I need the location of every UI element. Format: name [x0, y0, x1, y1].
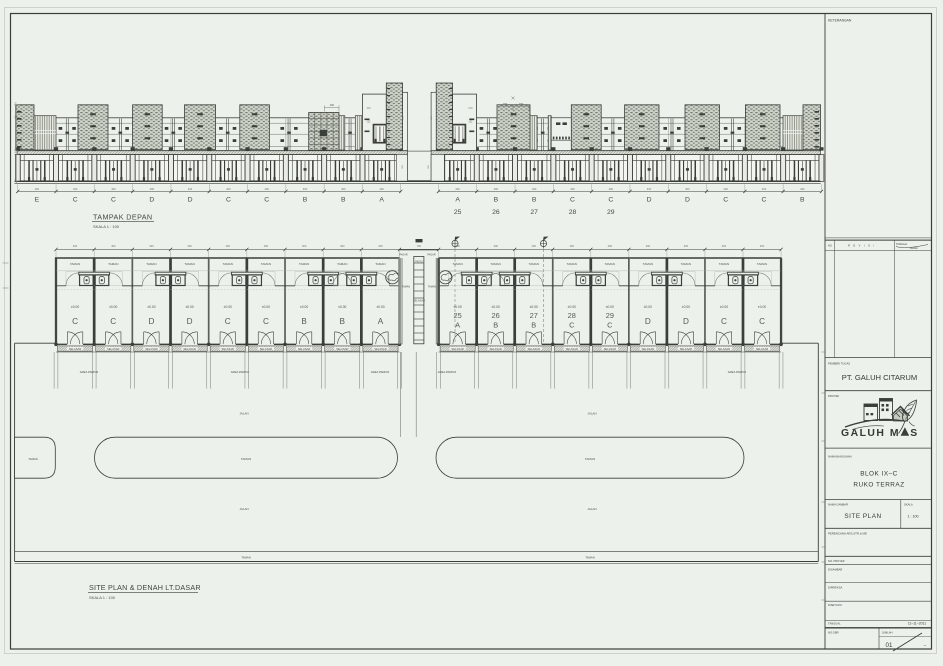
svg-text:25: 25	[454, 209, 462, 216]
svg-text:DIPERIKSA: DIPERIKSA	[828, 586, 843, 590]
svg-text:400: 400	[800, 187, 805, 191]
svg-text:NAMA GAMBAR: NAMA GAMBAR	[828, 503, 848, 507]
svg-text:400: 400	[265, 187, 270, 191]
svg-text:C: C	[263, 317, 269, 326]
svg-text:JUMLAH: JUMLAH	[882, 630, 893, 634]
svg-text:TAMAN: TAMAN	[146, 262, 156, 266]
svg-text:NAMA BANGUNAN: NAMA BANGUNAN	[828, 455, 852, 459]
svg-text:PEMBERI TUGAS: PEMBERI TUGAS	[828, 361, 850, 365]
svg-text:400: 400	[150, 187, 155, 191]
svg-text:±0.00: ±0.00	[185, 305, 193, 309]
svg-text:400: 400	[609, 187, 614, 191]
svg-text:PINTU: PINTU	[415, 260, 422, 263]
svg-text:SELASAR: SELASAR	[528, 347, 540, 351]
svg-text:132: 132	[468, 121, 473, 124]
svg-text:DIGAMBAR: DIGAMBAR	[828, 568, 842, 572]
svg-text:C: C	[607, 320, 613, 329]
svg-text:SELASAR: SELASAR	[183, 347, 195, 351]
svg-text:B: B	[303, 196, 308, 203]
svg-text:TAMAN: TAMAN	[567, 262, 577, 266]
svg-text:SELASAR: SELASAR	[222, 347, 234, 351]
svg-text:400: 400	[340, 244, 345, 248]
svg-text:TAMAN: TAMAN	[452, 262, 462, 266]
svg-text:TAMAN: TAMAN	[529, 262, 539, 266]
svg-text:±0.00: ±0.00	[682, 305, 690, 309]
svg-text:TAMAN: TAMAN	[241, 556, 251, 560]
svg-text:±0.00: ±0.00	[606, 305, 614, 309]
svg-text:E: E	[35, 196, 40, 203]
svg-text:400: 400	[378, 244, 383, 248]
svg-text:400: 400	[494, 187, 499, 191]
svg-text:D: D	[187, 317, 193, 326]
svg-text:SKALA: SKALA	[904, 503, 913, 507]
svg-text:400: 400	[379, 187, 384, 191]
svg-text:D: D	[149, 196, 154, 203]
svg-text:PAGAR: PAGAR	[399, 253, 407, 256]
svg-text:SKALA 1 : 100: SKALA 1 : 100	[89, 595, 116, 600]
svg-text:400: 400	[302, 244, 307, 248]
svg-text:400: 400	[226, 187, 231, 191]
svg-text:TAMAN: TAMAN	[337, 262, 347, 266]
svg-text:SELASAR: SELASAR	[604, 347, 616, 351]
svg-text:TAMAN: TAMAN	[585, 556, 595, 560]
svg-text:27: 27	[530, 311, 538, 320]
svg-text:C: C	[569, 320, 575, 329]
svg-text:±0.00: ±0.00	[262, 305, 270, 309]
svg-text:400: 400	[73, 187, 78, 191]
svg-text:C: C	[608, 196, 613, 203]
svg-text:±0.00: ±0.00	[376, 305, 384, 309]
svg-text:29: 29	[606, 311, 614, 320]
svg-text:SELASAR: SELASAR	[374, 347, 386, 351]
svg-text:±0.00: ±0.00	[492, 305, 500, 309]
svg-text:NO. PROYEK: NO. PROYEK	[828, 559, 845, 563]
svg-text:B: B	[301, 317, 307, 326]
svg-text:±0.00: ±0.00	[224, 305, 232, 309]
svg-text:400: 400	[187, 244, 192, 248]
svg-text:C: C	[723, 196, 728, 203]
svg-text:TAMAN: TAMAN	[184, 262, 194, 266]
svg-text:C: C	[570, 196, 575, 203]
svg-text:B: B	[532, 196, 537, 203]
svg-text:100: 100	[330, 103, 335, 107]
svg-text:±0.00: ±0.00	[644, 305, 652, 309]
svg-text:SELASAR: SELASAR	[298, 347, 310, 351]
svg-text:A: A	[379, 196, 384, 203]
svg-text:TAMAN: TAMAN	[28, 457, 38, 461]
svg-text:NO: NO	[828, 243, 832, 247]
svg-text:400: 400	[532, 187, 537, 191]
svg-text:172: 172	[366, 106, 371, 110]
svg-text:TAMAN: TAMAN	[108, 262, 118, 266]
svg-text:C: C	[721, 317, 727, 326]
svg-text:TAMAN: TAMAN	[757, 262, 767, 266]
svg-text:400: 400	[608, 244, 613, 248]
svg-text:TAMAN: TAMAN	[605, 262, 615, 266]
svg-text:400: 400	[570, 187, 575, 191]
svg-text:29: 29	[607, 209, 615, 216]
svg-text:TANGGAL: TANGGAL	[896, 243, 908, 246]
svg-text:C: C	[72, 317, 78, 326]
svg-text:JALAN: JALAN	[587, 507, 596, 511]
svg-text:BLOK IX–C: BLOK IX–C	[860, 471, 898, 478]
svg-text:AREA PARKIR: AREA PARKIR	[371, 370, 389, 374]
svg-text:28: 28	[569, 209, 577, 216]
svg-text:NO.GBR: NO.GBR	[828, 630, 839, 634]
svg-text:390: 390	[417, 245, 422, 248]
svg-text:400: 400	[264, 244, 269, 248]
svg-text:A: A	[455, 196, 460, 203]
svg-text:400: 400	[646, 244, 651, 248]
svg-text:400: 400	[226, 244, 231, 248]
svg-text:SKALA 1 : 100: SKALA 1 : 100	[93, 224, 120, 229]
svg-text:40: 40	[15, 179, 17, 181]
svg-text:TAMAN: TAMAN	[241, 457, 251, 461]
svg-text:400: 400	[760, 244, 765, 248]
svg-text:JALAN: JALAN	[587, 412, 596, 416]
svg-text:26: 26	[492, 311, 500, 320]
svg-text:D: D	[148, 317, 154, 326]
svg-text:PERENCANA ARS,STR & ME: PERENCANA ARS,STR & ME	[828, 531, 867, 535]
svg-text:TANGGAL: TANGGAL	[828, 622, 841, 626]
svg-text:400: 400	[188, 187, 193, 191]
svg-text:D: D	[188, 196, 193, 203]
svg-text:TAMAN: TAMAN	[402, 286, 410, 289]
svg-text:400: 400	[35, 187, 40, 191]
svg-text:TAMAN: TAMAN	[70, 262, 80, 266]
svg-text:28: 28	[568, 311, 576, 320]
svg-text:C: C	[264, 196, 269, 203]
svg-text:150: 150	[519, 102, 524, 106]
svg-text:AREA PARKIR: AREA PARKIR	[728, 370, 746, 374]
svg-text:C: C	[762, 196, 767, 203]
svg-text:±0.00: ±0.00	[338, 305, 346, 309]
svg-text:SELASAR: SELASAR	[260, 347, 272, 351]
svg-text:±0.00: ±0.00	[530, 305, 538, 309]
svg-text:SELASAR: SELASAR	[756, 347, 768, 351]
svg-text:40: 40	[15, 152, 17, 154]
svg-text:DISETUJUI: DISETUJUI	[828, 603, 842, 607]
svg-text:±0.00: ±0.00	[720, 305, 728, 309]
svg-text:SELASAR: SELASAR	[566, 347, 578, 351]
svg-text:B: B	[494, 196, 499, 203]
svg-text:D: D	[647, 196, 652, 203]
svg-text:1 : 100: 1 : 100	[908, 515, 919, 519]
svg-text:400: 400	[570, 244, 575, 248]
svg-text:25: 25	[454, 311, 462, 320]
svg-text:SELASAR: SELASAR	[336, 347, 348, 351]
svg-text:D: D	[685, 196, 690, 203]
svg-text:150: 150	[503, 102, 508, 106]
svg-text:SITE PLAN: SITE PLAN	[844, 513, 881, 520]
svg-text:D: D	[683, 317, 689, 326]
svg-text:B: B	[340, 317, 346, 326]
svg-text:S: S	[910, 428, 917, 439]
svg-text:400: 400	[73, 244, 78, 248]
svg-text:01: 01	[886, 642, 893, 649]
svg-text:C: C	[73, 196, 78, 203]
svg-text:400: 400	[724, 187, 729, 191]
svg-text:TAMAN: TAMAN	[261, 262, 271, 266]
svg-text:AREA PARKIR: AREA PARKIR	[438, 370, 456, 374]
svg-text:SELASAR: SELASAR	[69, 347, 81, 351]
svg-text:SELASAR: SELASAR	[642, 347, 654, 351]
svg-text:400: 400	[684, 244, 689, 248]
svg-text:C: C	[226, 196, 231, 203]
svg-text:SELASAR: SELASAR	[145, 347, 157, 351]
svg-text:400: 400	[111, 244, 116, 248]
svg-text:JALAN: JALAN	[239, 412, 248, 416]
svg-text:TAMAN: TAMAN	[375, 262, 385, 266]
svg-text:400: 400	[303, 187, 308, 191]
svg-text:B: B	[531, 320, 536, 329]
svg-text:B: B	[341, 196, 346, 203]
svg-text:TAMAN: TAMAN	[223, 262, 233, 266]
svg-text:400: 400	[647, 187, 652, 191]
svg-text:A: A	[455, 320, 460, 329]
svg-text:TAMAN: TAMAN	[585, 457, 595, 461]
svg-text:400: 400	[341, 187, 346, 191]
svg-text:40: 40	[15, 103, 17, 105]
svg-text:C: C	[111, 196, 116, 203]
svg-text:400: 400	[685, 187, 690, 191]
svg-text:C: C	[759, 317, 765, 326]
svg-text:KETERANGAN: KETERANGAN	[828, 19, 852, 23]
svg-text:±0.00: ±0.00	[568, 305, 576, 309]
svg-text:400: 400	[455, 187, 460, 191]
svg-text:400: 400	[149, 244, 154, 248]
svg-text:SITE PLAN & DENAH LT.DASAR: SITE PLAN & DENAH LT.DASAR	[89, 583, 201, 592]
svg-text:172: 172	[468, 106, 473, 110]
svg-text:TAMAN: TAMAN	[719, 262, 729, 266]
svg-text:400: 400	[494, 244, 499, 248]
svg-text:RUKO TERRAZ: RUKO TERRAZ	[853, 481, 904, 488]
svg-text:PAGAR: PAGAR	[427, 253, 435, 256]
svg-text:TAMAN: TAMAN	[643, 262, 653, 266]
svg-text:400: 400	[532, 244, 537, 248]
svg-text:TAMAN: TAMAN	[491, 262, 501, 266]
svg-text:40: 40	[15, 149, 17, 151]
svg-text:±0.00: ±0.00	[71, 305, 79, 309]
svg-text:SELASAR: SELASAR	[489, 347, 501, 351]
svg-text:TAMAN: TAMAN	[299, 262, 309, 266]
svg-text:R E V I S I: R E V I S I	[848, 243, 876, 247]
svg-text:±0.00: ±0.00	[758, 305, 766, 309]
svg-text:C: C	[110, 317, 116, 326]
svg-text:JALAN: JALAN	[239, 507, 248, 511]
svg-text:GALUH M: GALUH M	[841, 428, 900, 439]
svg-text:26: 26	[492, 209, 500, 216]
svg-text:PROYEK: PROYEK	[828, 394, 839, 398]
svg-text:400: 400	[722, 244, 727, 248]
svg-text:B: B	[800, 196, 805, 203]
svg-text:±0.00: ±0.00	[300, 305, 308, 309]
svg-text:400: 400	[111, 187, 116, 191]
svg-text:40: 40	[15, 116, 17, 118]
svg-text:SELASAR: SELASAR	[107, 347, 119, 351]
svg-text:SELASAR: SELASAR	[718, 347, 730, 351]
svg-text:132: 132	[367, 121, 372, 124]
svg-text:PARAF: PARAF	[910, 247, 918, 250]
svg-text:±0.00: ±0.00	[109, 305, 117, 309]
svg-text:A: A	[378, 317, 384, 326]
svg-text:B: B	[493, 320, 498, 329]
svg-text:TAMPAK DEPAN: TAMPAK DEPAN	[93, 212, 153, 221]
svg-text:C: C	[225, 317, 231, 326]
svg-text:TAMAN: TAMAN	[428, 286, 436, 289]
svg-text:AREA PARKIR: AREA PARKIR	[80, 370, 98, 374]
svg-text:SELASAR: SELASAR	[680, 347, 692, 351]
svg-text:PT. GALUH CITARUM: PT. GALUH CITARUM	[842, 373, 917, 382]
svg-text:400: 400	[762, 187, 767, 191]
svg-text:11–11–2011: 11–11–2011	[908, 622, 926, 626]
svg-text:D: D	[645, 317, 651, 326]
svg-text:±0.00: ±0.00	[147, 305, 155, 309]
svg-text:SELASAR: SELASAR	[451, 347, 463, 351]
svg-text:±0.00: ±0.00	[454, 305, 462, 309]
svg-text:AREA PARKIR: AREA PARKIR	[231, 370, 249, 374]
svg-text:27: 27	[530, 209, 538, 216]
svg-text:SELASAR: SELASAR	[413, 298, 425, 302]
svg-text:TAMAN: TAMAN	[681, 262, 691, 266]
